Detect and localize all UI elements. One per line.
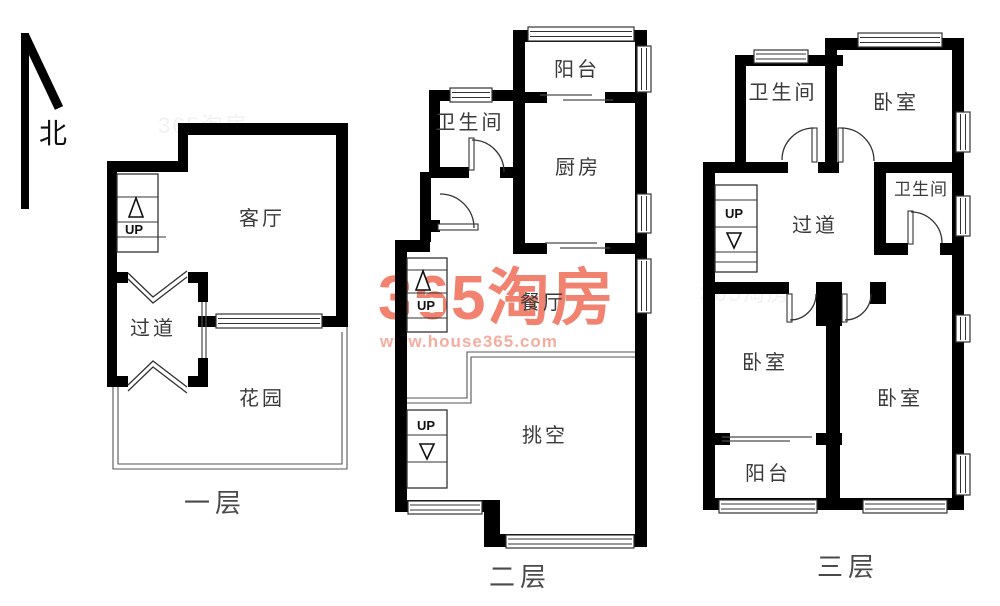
stairs-up-label: UP (725, 206, 743, 221)
room-label-bathroom-top: 卫生间 (749, 81, 818, 104)
sliding-door-icon (540, 95, 613, 100)
floor3-walls (703, 38, 964, 510)
floor3-stairs: UP (715, 185, 757, 272)
window-icon (637, 259, 651, 313)
room-label-living-room: 客厅 (239, 207, 285, 230)
room-label-kitchen: 厨房 (555, 156, 601, 179)
door-arc-icon (469, 138, 504, 172)
room-label-bedroom-right: 卧室 (877, 387, 923, 410)
window-icon (858, 33, 942, 47)
balcony-rail-line (722, 437, 812, 441)
door-chevron-icon (128, 271, 187, 303)
void-step-line (407, 352, 635, 403)
floor2-stairs-lower: UP (407, 410, 447, 488)
stairs-up-label: UP (417, 298, 435, 313)
room-label-bathroom-right: 卫生间 (894, 180, 948, 199)
stairs-down-arrow-icon (727, 233, 741, 248)
window-icon (956, 112, 970, 152)
floor2-plan: UP UP 阳台 卫生间 厨房 餐厅 挑空 二层 (395, 27, 651, 592)
room-label-dining: 餐厅 (520, 291, 566, 314)
window-icon (450, 88, 492, 102)
door-arc-icon (842, 294, 871, 322)
floor3-plan: UP 卫生间 卧室 过道 卫生间 卧室 卧室 阳台 三层 (703, 33, 970, 582)
door-arc-icon (438, 194, 478, 230)
room-label-bathroom: 卫生间 (436, 111, 505, 134)
floor1-label: 一层 (184, 488, 246, 518)
north-label: 北 (39, 118, 67, 149)
window-icon (719, 500, 817, 513)
room-label-void: 挑空 (522, 424, 568, 447)
room-label-bedroom-top: 卧室 (873, 91, 919, 114)
floor1-walls (107, 123, 348, 387)
window-icon (216, 314, 322, 328)
stairs-up-label: UP (417, 418, 435, 433)
door-arc-icon (908, 211, 942, 244)
floor2-label: 二层 (489, 562, 551, 592)
window-icon (863, 500, 947, 513)
floor1-plan: UP 客厅 过道 花园 一层 (107, 123, 348, 518)
floorplan-canvas: 365淘房 365淘房 365淘房 www.house365.com 北 (0, 0, 1000, 606)
window-icon (956, 315, 970, 342)
door-arc-icon (782, 128, 817, 162)
window-icon (956, 196, 970, 236)
floor2-stairs-upper: UP (407, 258, 447, 332)
stairs-up-label: UP (125, 222, 143, 237)
room-label-balcony: 阳台 (745, 462, 791, 485)
room-label-balcony: 阳台 (554, 58, 600, 81)
window-icon (754, 50, 808, 63)
floor2-walls (395, 30, 647, 547)
sliding-door-icon (545, 243, 610, 248)
window-icon (637, 46, 651, 92)
floor1-stairs: UP (117, 174, 166, 252)
door-chevron-icon (128, 361, 187, 393)
room-label-bedroom-left: 卧室 (742, 351, 788, 374)
room-label-garden: 花园 (239, 387, 285, 410)
room-label-hallway: 过道 (130, 317, 176, 340)
floor3-label: 三层 (817, 552, 879, 582)
door-arc-icon (787, 294, 816, 322)
stairs-up-arrow-icon (416, 271, 430, 290)
stairs-down-arrow-icon (420, 444, 434, 459)
stairs-up-arrow-icon (129, 198, 143, 217)
window-icon (506, 535, 634, 548)
hallway-garden-divider (202, 302, 206, 358)
door-arc-icon (838, 128, 874, 162)
window-icon (637, 194, 651, 233)
floorplan-drawing: 北 (0, 0, 1000, 606)
garden-fence (113, 327, 347, 469)
room-label-hallway: 过道 (792, 214, 838, 237)
window-icon (956, 454, 970, 495)
window-icon (528, 27, 634, 41)
window-icon (408, 501, 482, 514)
